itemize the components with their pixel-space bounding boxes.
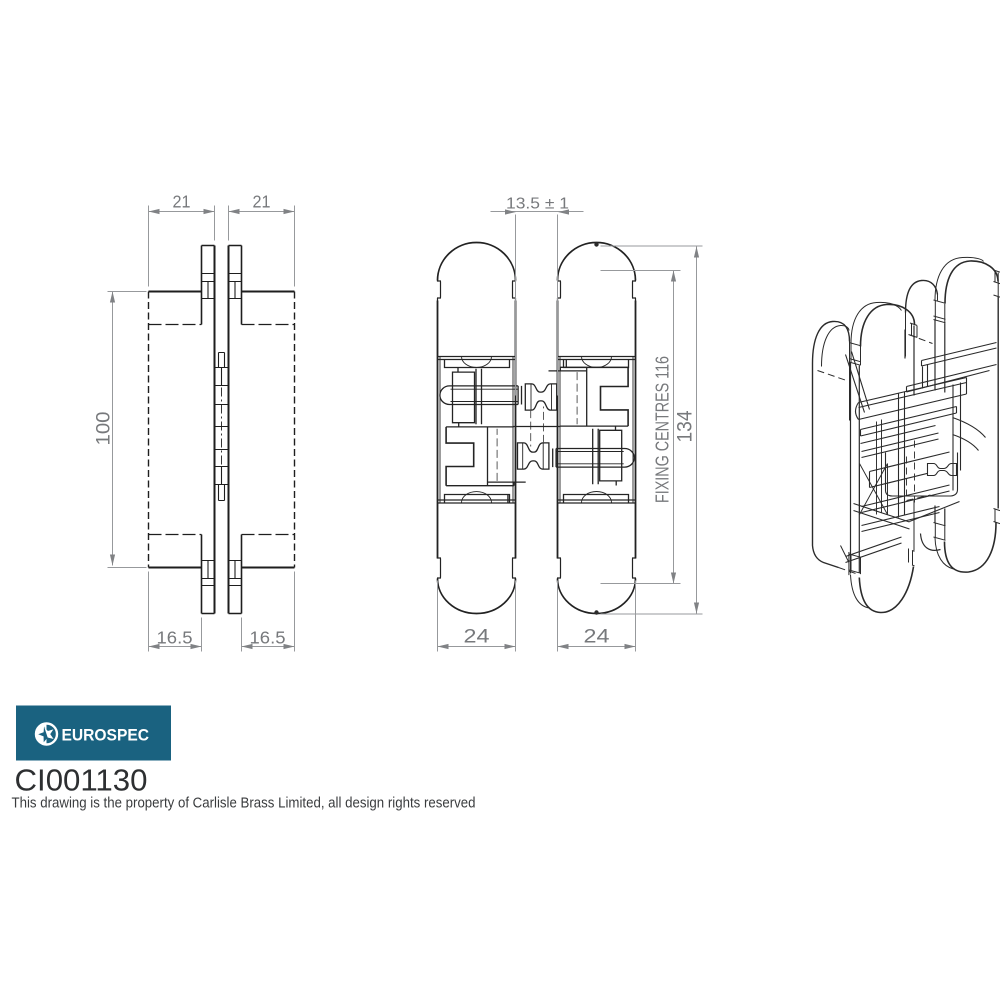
svg-text:21: 21 [173,192,191,212]
svg-text:EUROSPEC: EUROSPEC [62,727,150,745]
svg-text:16.5: 16.5 [157,628,193,648]
svg-text:100: 100 [94,412,115,446]
svg-text:FIXING CENTRES 116: FIXING CENTRES 116 [652,356,673,503]
svg-text:21: 21 [253,192,271,212]
svg-text:24: 24 [464,627,491,648]
svg-text:This drawing is the property o: This drawing is the property of Carlisle… [12,796,476,812]
svg-text:24: 24 [584,627,611,648]
svg-text:134: 134 [674,410,697,442]
svg-text:16.5: 16.5 [250,628,286,648]
svg-text:CI001130: CI001130 [15,763,148,798]
svg-text:13.5 ± 1: 13.5 ± 1 [506,196,569,213]
